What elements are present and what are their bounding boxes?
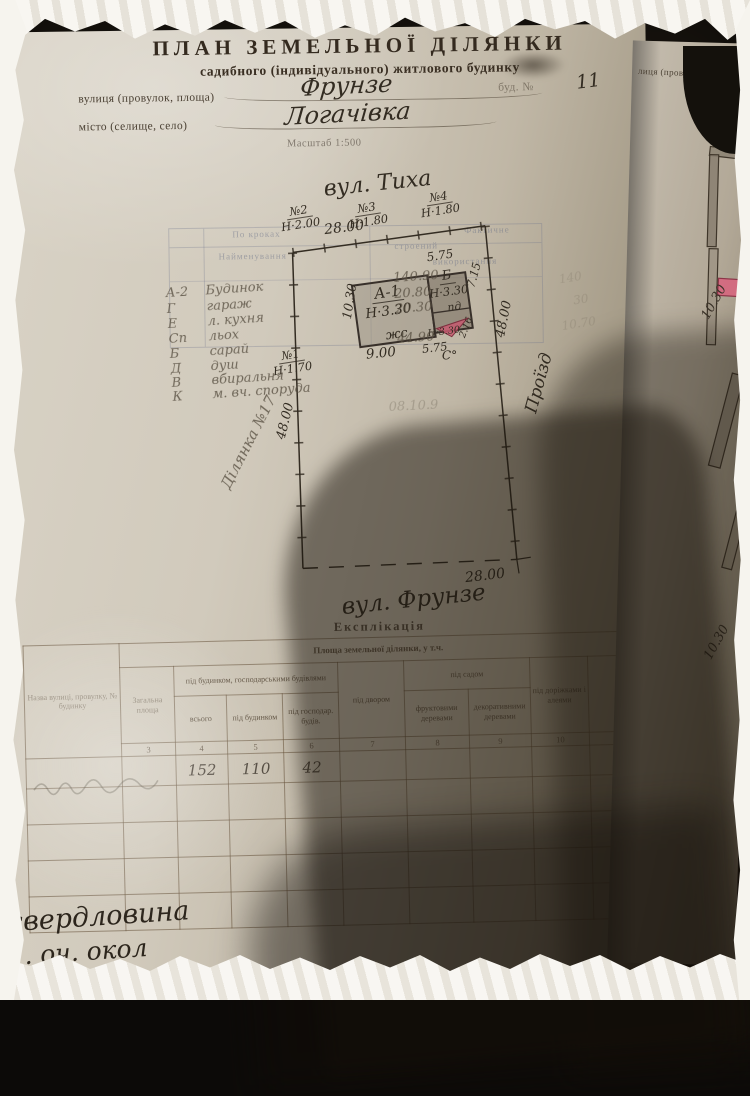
phone-shadow-bottom [242, 804, 739, 1096]
paper-glare [0, 600, 290, 930]
pencil-date: 08.10.9 [388, 398, 438, 415]
list-letter: Е [167, 316, 177, 332]
building-b-note: пд [446, 299, 462, 314]
dim-building-width: 9.00 [365, 344, 397, 363]
list-area: 20.30 [395, 299, 433, 316]
ghost-number: 30 [572, 291, 589, 307]
list-name: сарай [209, 342, 249, 360]
list-letter: Сп [168, 331, 187, 347]
list-letter: А-2 [165, 285, 188, 301]
list-area: 44.90 [397, 329, 435, 346]
list-letter: К [172, 389, 183, 405]
list-letter: Б [169, 346, 180, 362]
photo-background: ПЛАН ЗЕМЕЛЬНОЇ ДІЛЯНКИ садибного (індиві… [0, 0, 750, 1000]
list-letter: Г [166, 302, 176, 318]
north-mark: С° [442, 348, 457, 362]
list-area: 140.90 [393, 268, 439, 286]
